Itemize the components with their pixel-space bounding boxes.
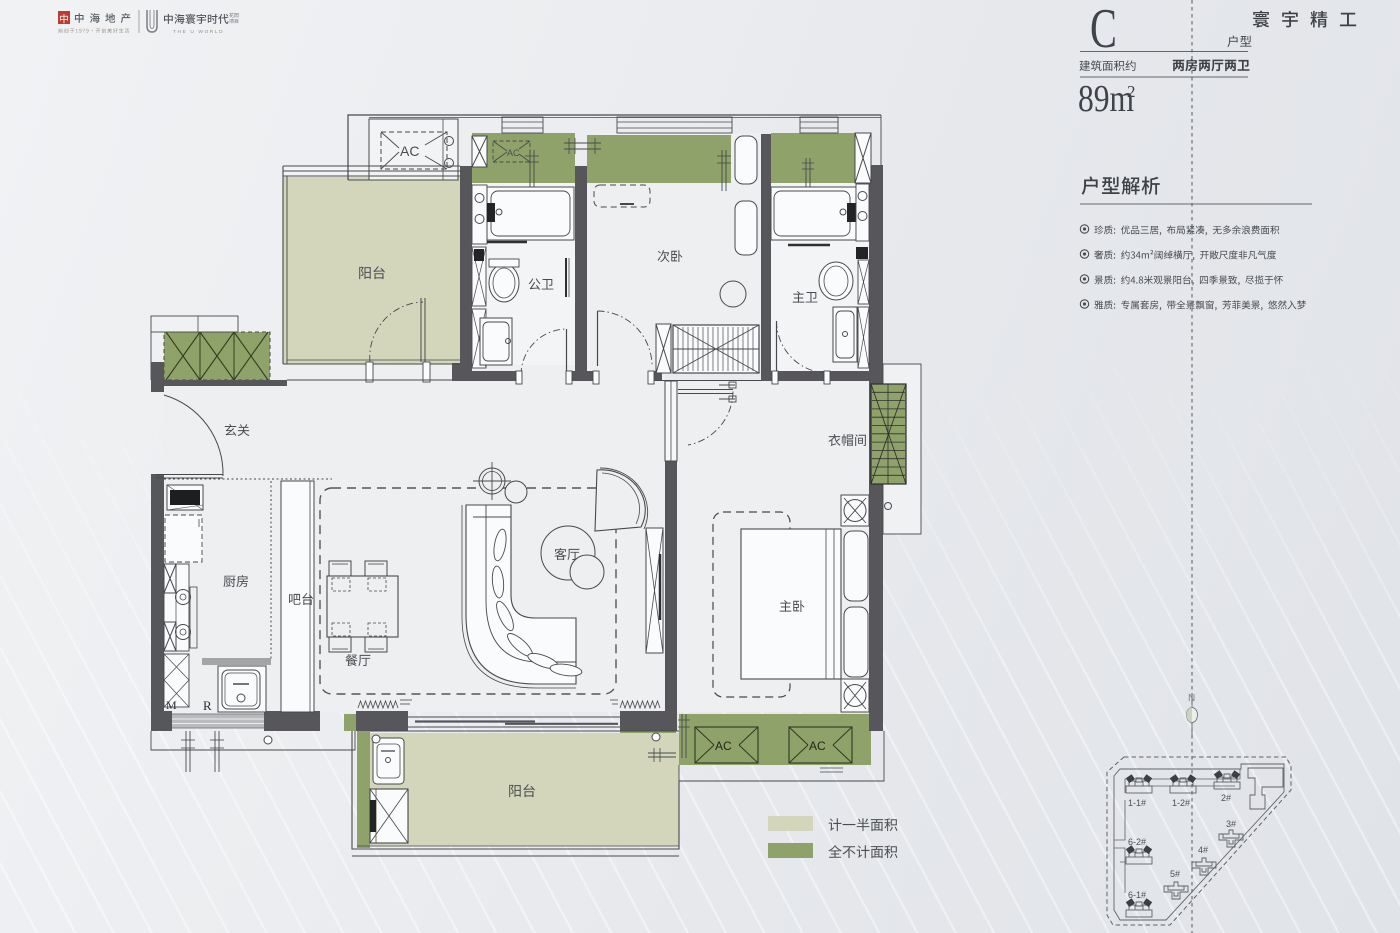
svg-text:1-2#: 1-2# [1172,798,1190,808]
svg-text:AC: AC [715,739,732,753]
svg-text:6-2#: 6-2# [1128,837,1146,847]
svg-text:2: 2 [1127,82,1136,101]
svg-text:C: C [1090,0,1117,60]
svg-text:THE U WORLD: THE U WORLD [173,29,224,35]
svg-text:AC: AC [400,143,419,159]
svg-text:R: R [203,698,212,713]
svg-text:89m: 89m [1078,77,1134,120]
svg-text:4#: 4# [1198,845,1208,855]
svg-text:AC: AC [507,148,520,158]
svg-text:6-1#: 6-1# [1128,890,1146,900]
svg-text:AC: AC [809,739,826,753]
svg-text:1-1#: 1-1# [1128,798,1146,808]
svg-text:5#: 5# [1170,869,1180,879]
svg-text:3#: 3# [1226,819,1236,829]
svg-text:2#: 2# [1221,793,1231,803]
svg-text:M: M [166,698,177,712]
svg-text:N: N [1188,693,1195,704]
